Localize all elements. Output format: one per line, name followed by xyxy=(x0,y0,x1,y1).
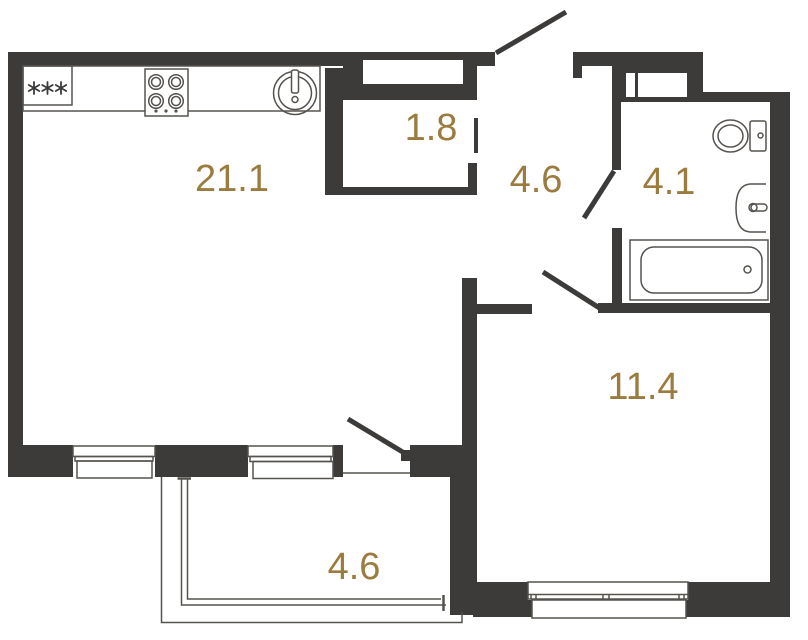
floor-plan-drawing xyxy=(0,0,808,640)
bathtub-icon xyxy=(630,240,768,300)
wardrobe-niche xyxy=(363,60,463,84)
balcony-railing xyxy=(178,478,447,611)
balcony-area-label: 4.6 xyxy=(328,548,381,586)
living-window-1 xyxy=(73,446,155,478)
stove-icon xyxy=(145,69,188,116)
kitchen-sink-icon xyxy=(274,70,317,115)
wardrobe-area-label: 1.8 xyxy=(405,109,458,147)
balcony-outer-line xyxy=(162,477,463,623)
fridge-freezer-stars xyxy=(29,82,66,94)
bathroom-door-leaf xyxy=(584,171,614,218)
kitchen-fixtures xyxy=(23,66,320,116)
walls xyxy=(8,52,790,617)
balcony-door-leaf xyxy=(348,419,406,454)
bedroom-window xyxy=(528,582,688,618)
hallway-area-label: 4.6 xyxy=(510,161,563,199)
living-window-2 xyxy=(248,446,333,479)
bedroom-door-leaf xyxy=(543,272,601,309)
bathroom-area-label: 4.1 xyxy=(643,163,696,201)
floor-plan: 21.1 1.8 4.6 4.1 11.4 4.6 xyxy=(0,0,808,640)
wardrobe-door-leaf xyxy=(474,118,478,153)
fridge-icon xyxy=(23,66,72,105)
vent-shaft-icon xyxy=(620,66,692,102)
bathroom-fixtures xyxy=(630,120,768,300)
balcony-door-hinge xyxy=(401,450,412,461)
toilet-icon xyxy=(713,120,766,152)
balcony-structure xyxy=(162,477,463,623)
washbasin-icon xyxy=(736,184,767,232)
living-room-area-label: 21.1 xyxy=(195,160,269,198)
bedroom-area-label: 11.4 xyxy=(607,368,678,406)
entrance-door-leaf xyxy=(496,12,566,53)
